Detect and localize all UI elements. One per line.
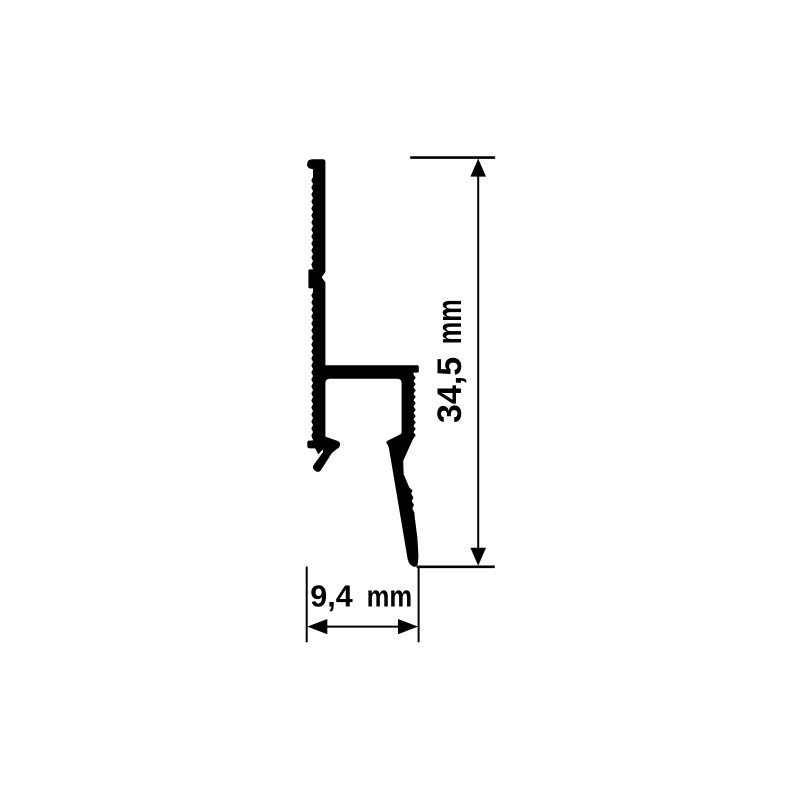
svg-text:mm: mm — [431, 299, 469, 344]
svg-text:34,5: 34,5 — [431, 357, 469, 423]
svg-text:mm: mm — [367, 580, 413, 614]
svg-text:9,4: 9,4 — [310, 580, 352, 614]
